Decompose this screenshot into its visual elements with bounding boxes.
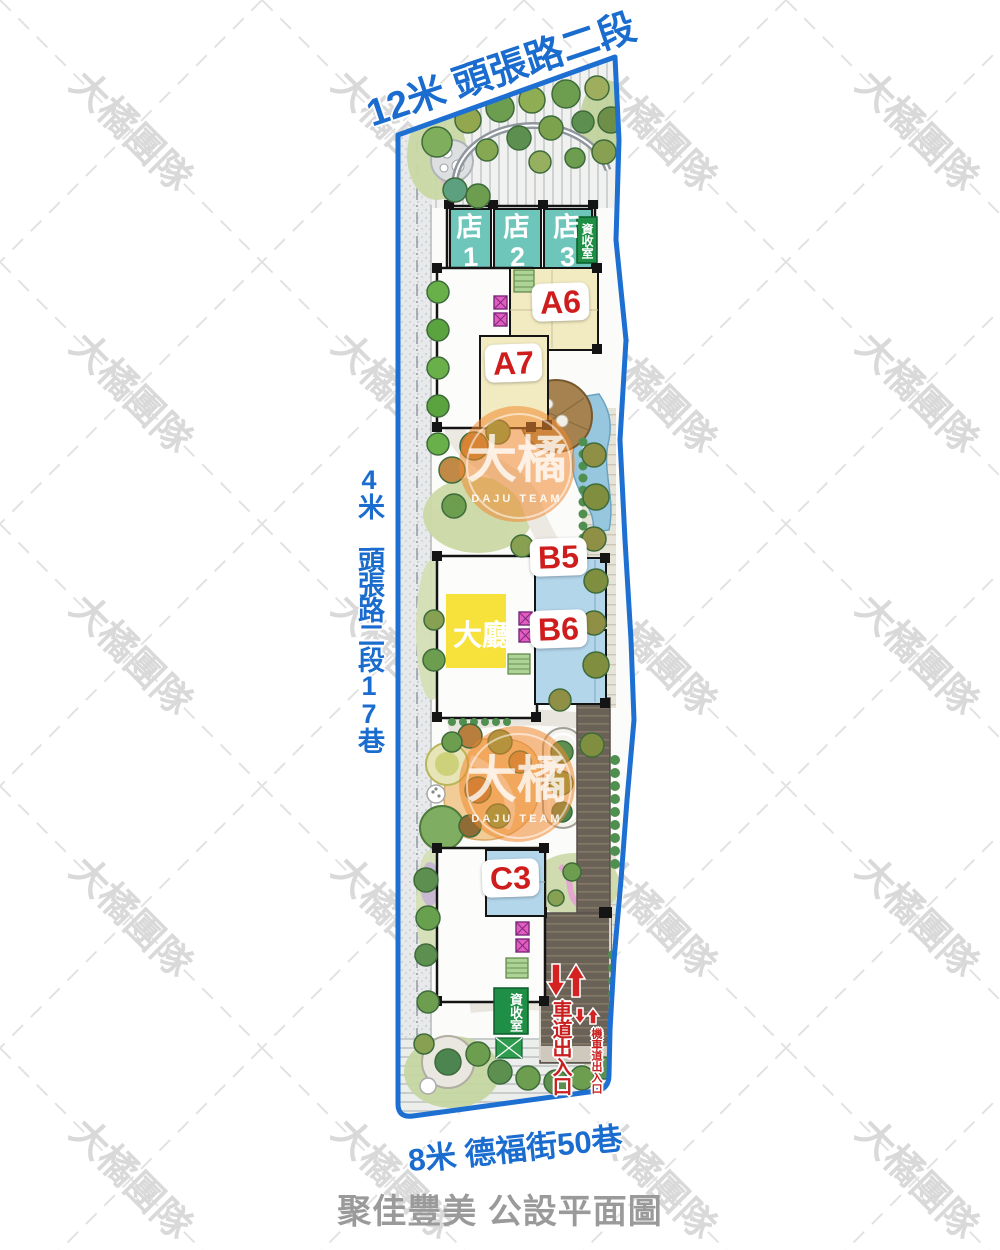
recycle-room-south-label: 資收室	[498, 991, 525, 1033]
store-2-label: 店 2	[495, 211, 539, 272]
lobby-label: 大廳	[448, 612, 516, 654]
logo-subtitle: DAJU TEAM	[459, 813, 575, 825]
unit-label-a7: A7	[484, 343, 542, 383]
site-plan-page: 大橘團隊	[0, 0, 1000, 1250]
recycle-room-north-label: 資收室	[578, 220, 596, 262]
car-ramp-label: 車道出入口	[546, 1000, 575, 1095]
logo-characters: 大橘	[459, 420, 575, 492]
store-1-label: 店 1	[448, 211, 492, 272]
store-number: 1	[449, 241, 492, 272]
daju-logo-watermark: 大橘 DAJU TEAM	[459, 406, 575, 522]
logo-subtitle: DAJU TEAM	[459, 493, 575, 505]
page-title: 聚佳豐美 公設平面圖	[330, 1184, 670, 1233]
unit-label-b5: B5	[529, 537, 587, 577]
unit-label-c3: C3	[481, 858, 539, 898]
moto-ramp-label: 機車道出入口	[588, 1028, 604, 1094]
store-char: 店	[448, 211, 491, 242]
road-label-left: 4米 頭張路二段17巷	[350, 465, 389, 752]
daju-logo-watermark: 大橘 DAJU TEAM	[459, 726, 575, 842]
store-number: 2	[496, 241, 539, 272]
logo-characters: 大橘	[459, 740, 575, 812]
unit-label-b6: B6	[529, 609, 587, 649]
store-char: 店	[495, 211, 538, 242]
unit-label-a6: A6	[531, 282, 589, 322]
